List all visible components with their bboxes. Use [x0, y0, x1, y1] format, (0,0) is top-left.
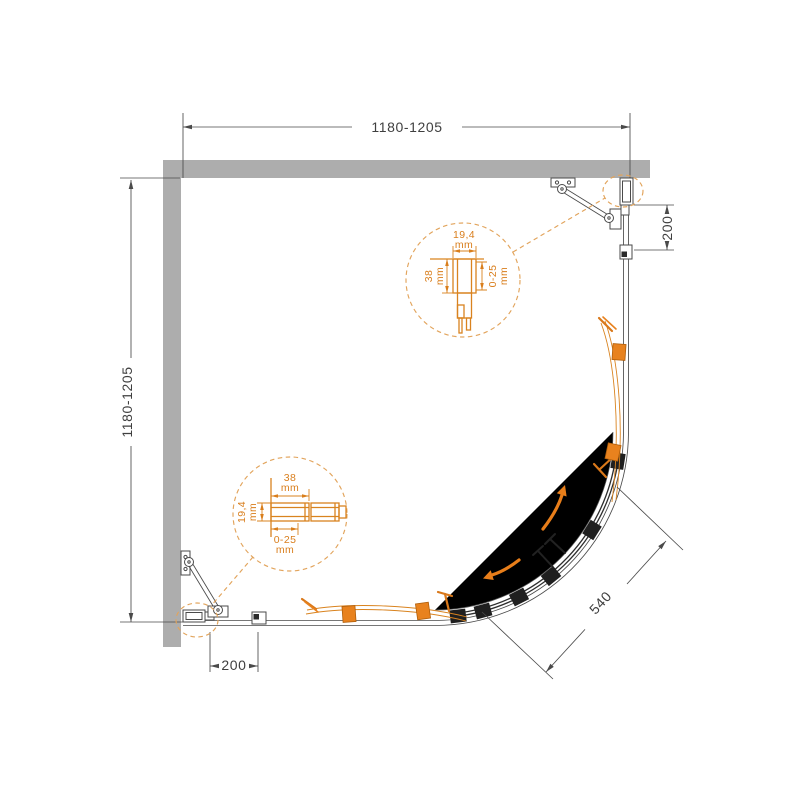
arrowhead — [210, 664, 219, 669]
curved-door-track — [435, 432, 613, 610]
dimension-bottom-offset: 200 — [210, 632, 258, 673]
extension-line — [617, 487, 683, 550]
detail-top-adjustment-unit: mm — [498, 267, 510, 285]
arrowhead — [183, 125, 192, 130]
callout-leader-line — [513, 198, 605, 252]
dimension-label-left: 1180-1205 — [119, 366, 135, 437]
dimension-label-top: 1180-1205 — [371, 119, 442, 135]
callout-leader-line — [211, 557, 253, 606]
strut-top-edge — [561, 191, 608, 220]
strut-pivot-pin — [561, 188, 563, 190]
detail-bottom-adjustment-unit: mm — [276, 544, 294, 556]
arrowhead — [129, 180, 134, 189]
detail-bottom-depth-unit: mm — [247, 503, 259, 521]
open-door-bottom-tab — [302, 599, 316, 609]
detail-top-depth-unit: mm — [434, 267, 446, 285]
arrowhead — [621, 125, 630, 130]
open-door-roller — [342, 606, 356, 623]
open-door-roller — [612, 344, 626, 361]
screw — [184, 567, 187, 570]
detail-callout-top: 19,4 mm 38 mm 0-25 mm — [406, 175, 643, 337]
screw — [567, 181, 570, 184]
arrowhead — [129, 613, 134, 622]
dimension-label-right-offset: 200 — [659, 215, 675, 240]
strut-pivot-pin — [188, 561, 190, 563]
dimension-right-offset: 200 — [634, 205, 675, 250]
screw — [555, 181, 558, 184]
panel-bracket-right-block — [622, 252, 628, 258]
wall-profile-top-inner — [623, 181, 631, 202]
dimension-label-bottom-offset: 200 — [221, 657, 246, 673]
detail-bottom-width-unit: mm — [281, 482, 299, 494]
arrowhead — [249, 664, 258, 669]
top-wall — [163, 160, 650, 178]
open-door-roller — [605, 443, 621, 461]
arrowhead — [665, 205, 670, 214]
strut-top-edge — [563, 187, 610, 216]
detail-top-width-unit: mm — [455, 239, 473, 251]
open-door-bottom-tab-line — [305, 602, 318, 612]
strut-pivot-pin — [217, 609, 219, 611]
open-door-roller — [415, 602, 430, 620]
drawing-canvas: 1180-1205 1180-1205 200 200 540 — [0, 0, 800, 800]
open-door-bottom-glass — [306, 610, 466, 621]
strut-bottom-edge — [191, 561, 220, 609]
hardware — [181, 178, 633, 624]
extension-line — [482, 612, 553, 679]
panel-bracket-bottom-block — [254, 614, 260, 620]
wall-profile-bottom-inner — [186, 613, 202, 620]
walls — [163, 160, 650, 647]
shower-enclosure-plan-drawing: 1180-1205 1180-1205 200 200 540 — [0, 0, 800, 800]
arrowhead — [665, 241, 670, 250]
strut-pivot-pin — [608, 217, 610, 219]
left-wall — [163, 178, 181, 647]
dimension-label-diagonal: 540 — [586, 588, 615, 617]
